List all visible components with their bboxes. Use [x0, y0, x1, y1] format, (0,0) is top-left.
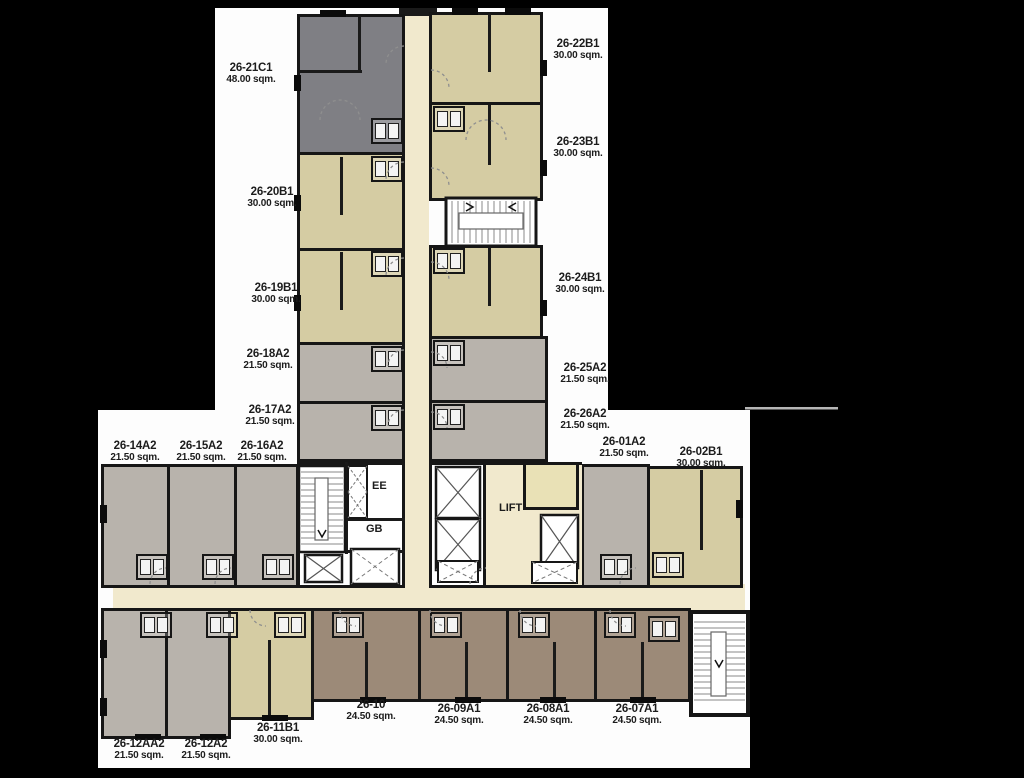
- unit-area: 30.00 sqm.: [538, 148, 618, 159]
- unit-id: 26-23B1: [538, 136, 618, 148]
- unit-label-26-02B1: 26-02B1 30.00 sqm.: [661, 446, 741, 469]
- staircase-upper: [446, 198, 536, 246]
- unit-area: 30.00 sqm.: [236, 294, 316, 305]
- staircase-core: [299, 466, 345, 552]
- unit-label-26-12A2: 26-12A2 21.50 sqm.: [166, 738, 246, 761]
- unit-label-26-26A2: 26-26A2 21.50 sqm.: [545, 408, 625, 431]
- unit-area: 21.50 sqm.: [545, 420, 625, 431]
- unit-area: 24.50 sqm.: [508, 715, 588, 726]
- unit-area: 24.50 sqm.: [331, 711, 411, 722]
- unit-area: 48.00 sqm.: [211, 74, 291, 85]
- floor-plan-canvas: 26-21C1 48.00 sqm. 26-22B1 30.00 sqm. 26…: [0, 0, 1024, 778]
- artifact-line: [745, 407, 838, 410]
- ee-shaft: [348, 466, 367, 518]
- unit-area: 21.50 sqm.: [545, 374, 625, 385]
- unit-area: 24.50 sqm.: [419, 715, 499, 726]
- unit-label-26-08A1: 26-08A1 24.50 sqm.: [508, 703, 588, 726]
- unit-id: 26-24B1: [540, 272, 620, 284]
- unit-id: 26-09A1: [419, 703, 499, 715]
- service-shaft: [351, 549, 399, 584]
- unit-label-26-17A2: 26-17A2 21.50 sqm.: [230, 404, 310, 427]
- unit-label-26-16A2: 26-16A2 21.50 sqm.: [222, 440, 302, 463]
- ee-room-label: EE: [372, 480, 387, 492]
- plan-linework: [0, 0, 1024, 778]
- unit-id: 26-19B1: [236, 282, 316, 294]
- unit-id: 26-16A2: [222, 440, 302, 452]
- unit-id: 26-22B1: [538, 38, 618, 50]
- unit-id: 26-12A2: [166, 738, 246, 750]
- unit-area: 30.00 sqm.: [238, 734, 318, 745]
- unit-label-26-21C1: 26-21C1 48.00 sqm.: [211, 62, 291, 85]
- unit-area: 21.50 sqm.: [230, 416, 310, 427]
- unit-id: 26-18A2: [228, 348, 308, 360]
- unit-label-26-11B1: 26-11B1 30.00 sqm.: [238, 722, 318, 745]
- unit-label-26-20B1: 26-20B1 30.00 sqm.: [232, 186, 312, 209]
- staircase-bottom-right: [691, 612, 748, 715]
- unit-label-26-01A2: 26-01A2 21.50 sqm.: [584, 436, 664, 459]
- unit-area: 21.50 sqm.: [166, 750, 246, 761]
- unit-id: 26-10: [331, 699, 411, 711]
- unit-label-26-22B1: 26-22B1 30.00 sqm.: [538, 38, 618, 61]
- unit-label-26-10: 26-10 24.50 sqm.: [331, 699, 411, 722]
- unit-label-26-25A2: 26-25A2 21.50 sqm.: [545, 362, 625, 385]
- unit-id: 26-07A1: [597, 703, 677, 715]
- unit-id: 26-08A1: [508, 703, 588, 715]
- unit-id: 26-25A2: [545, 362, 625, 374]
- unit-area: 30.00 sqm.: [661, 458, 741, 469]
- unit-area: 21.50 sqm.: [228, 360, 308, 371]
- unit-area: 21.50 sqm.: [584, 448, 664, 459]
- unit-id: 26-20B1: [232, 186, 312, 198]
- lift-lobby-label: LIFT: [499, 502, 522, 514]
- unit-label-26-23B1: 26-23B1 30.00 sqm.: [538, 136, 618, 159]
- unit-label-26-07A1: 26-07A1 24.50 sqm.: [597, 703, 677, 726]
- unit-area: 30.00 sqm.: [540, 284, 620, 295]
- unit-area: 30.00 sqm.: [232, 198, 312, 209]
- unit-area: 30.00 sqm.: [538, 50, 618, 61]
- unit-id: 26-01A2: [584, 436, 664, 448]
- service-shaft: [438, 561, 478, 582]
- gb-room-label: GB: [366, 523, 383, 535]
- unit-area: 24.50 sqm.: [597, 715, 677, 726]
- unit-id: 26-21C1: [211, 62, 291, 74]
- lift-shaft: [541, 515, 578, 568]
- unit-id: 26-17A2: [230, 404, 310, 416]
- unit-label-26-09A1: 26-09A1 24.50 sqm.: [419, 703, 499, 726]
- unit-area: 21.50 sqm.: [222, 452, 302, 463]
- unit-label-26-18A2: 26-18A2 21.50 sqm.: [228, 348, 308, 371]
- unit-id: 26-02B1: [661, 446, 741, 458]
- unit-label-26-19B1: 26-19B1 30.00 sqm.: [236, 282, 316, 305]
- unit-id: 26-11B1: [238, 722, 318, 734]
- unit-label-26-24B1: 26-24B1 30.00 sqm.: [540, 272, 620, 295]
- service-shaft: [305, 555, 342, 582]
- lift-shaft: [436, 467, 480, 518]
- unit-id: 26-26A2: [545, 408, 625, 420]
- service-shaft: [532, 562, 577, 583]
